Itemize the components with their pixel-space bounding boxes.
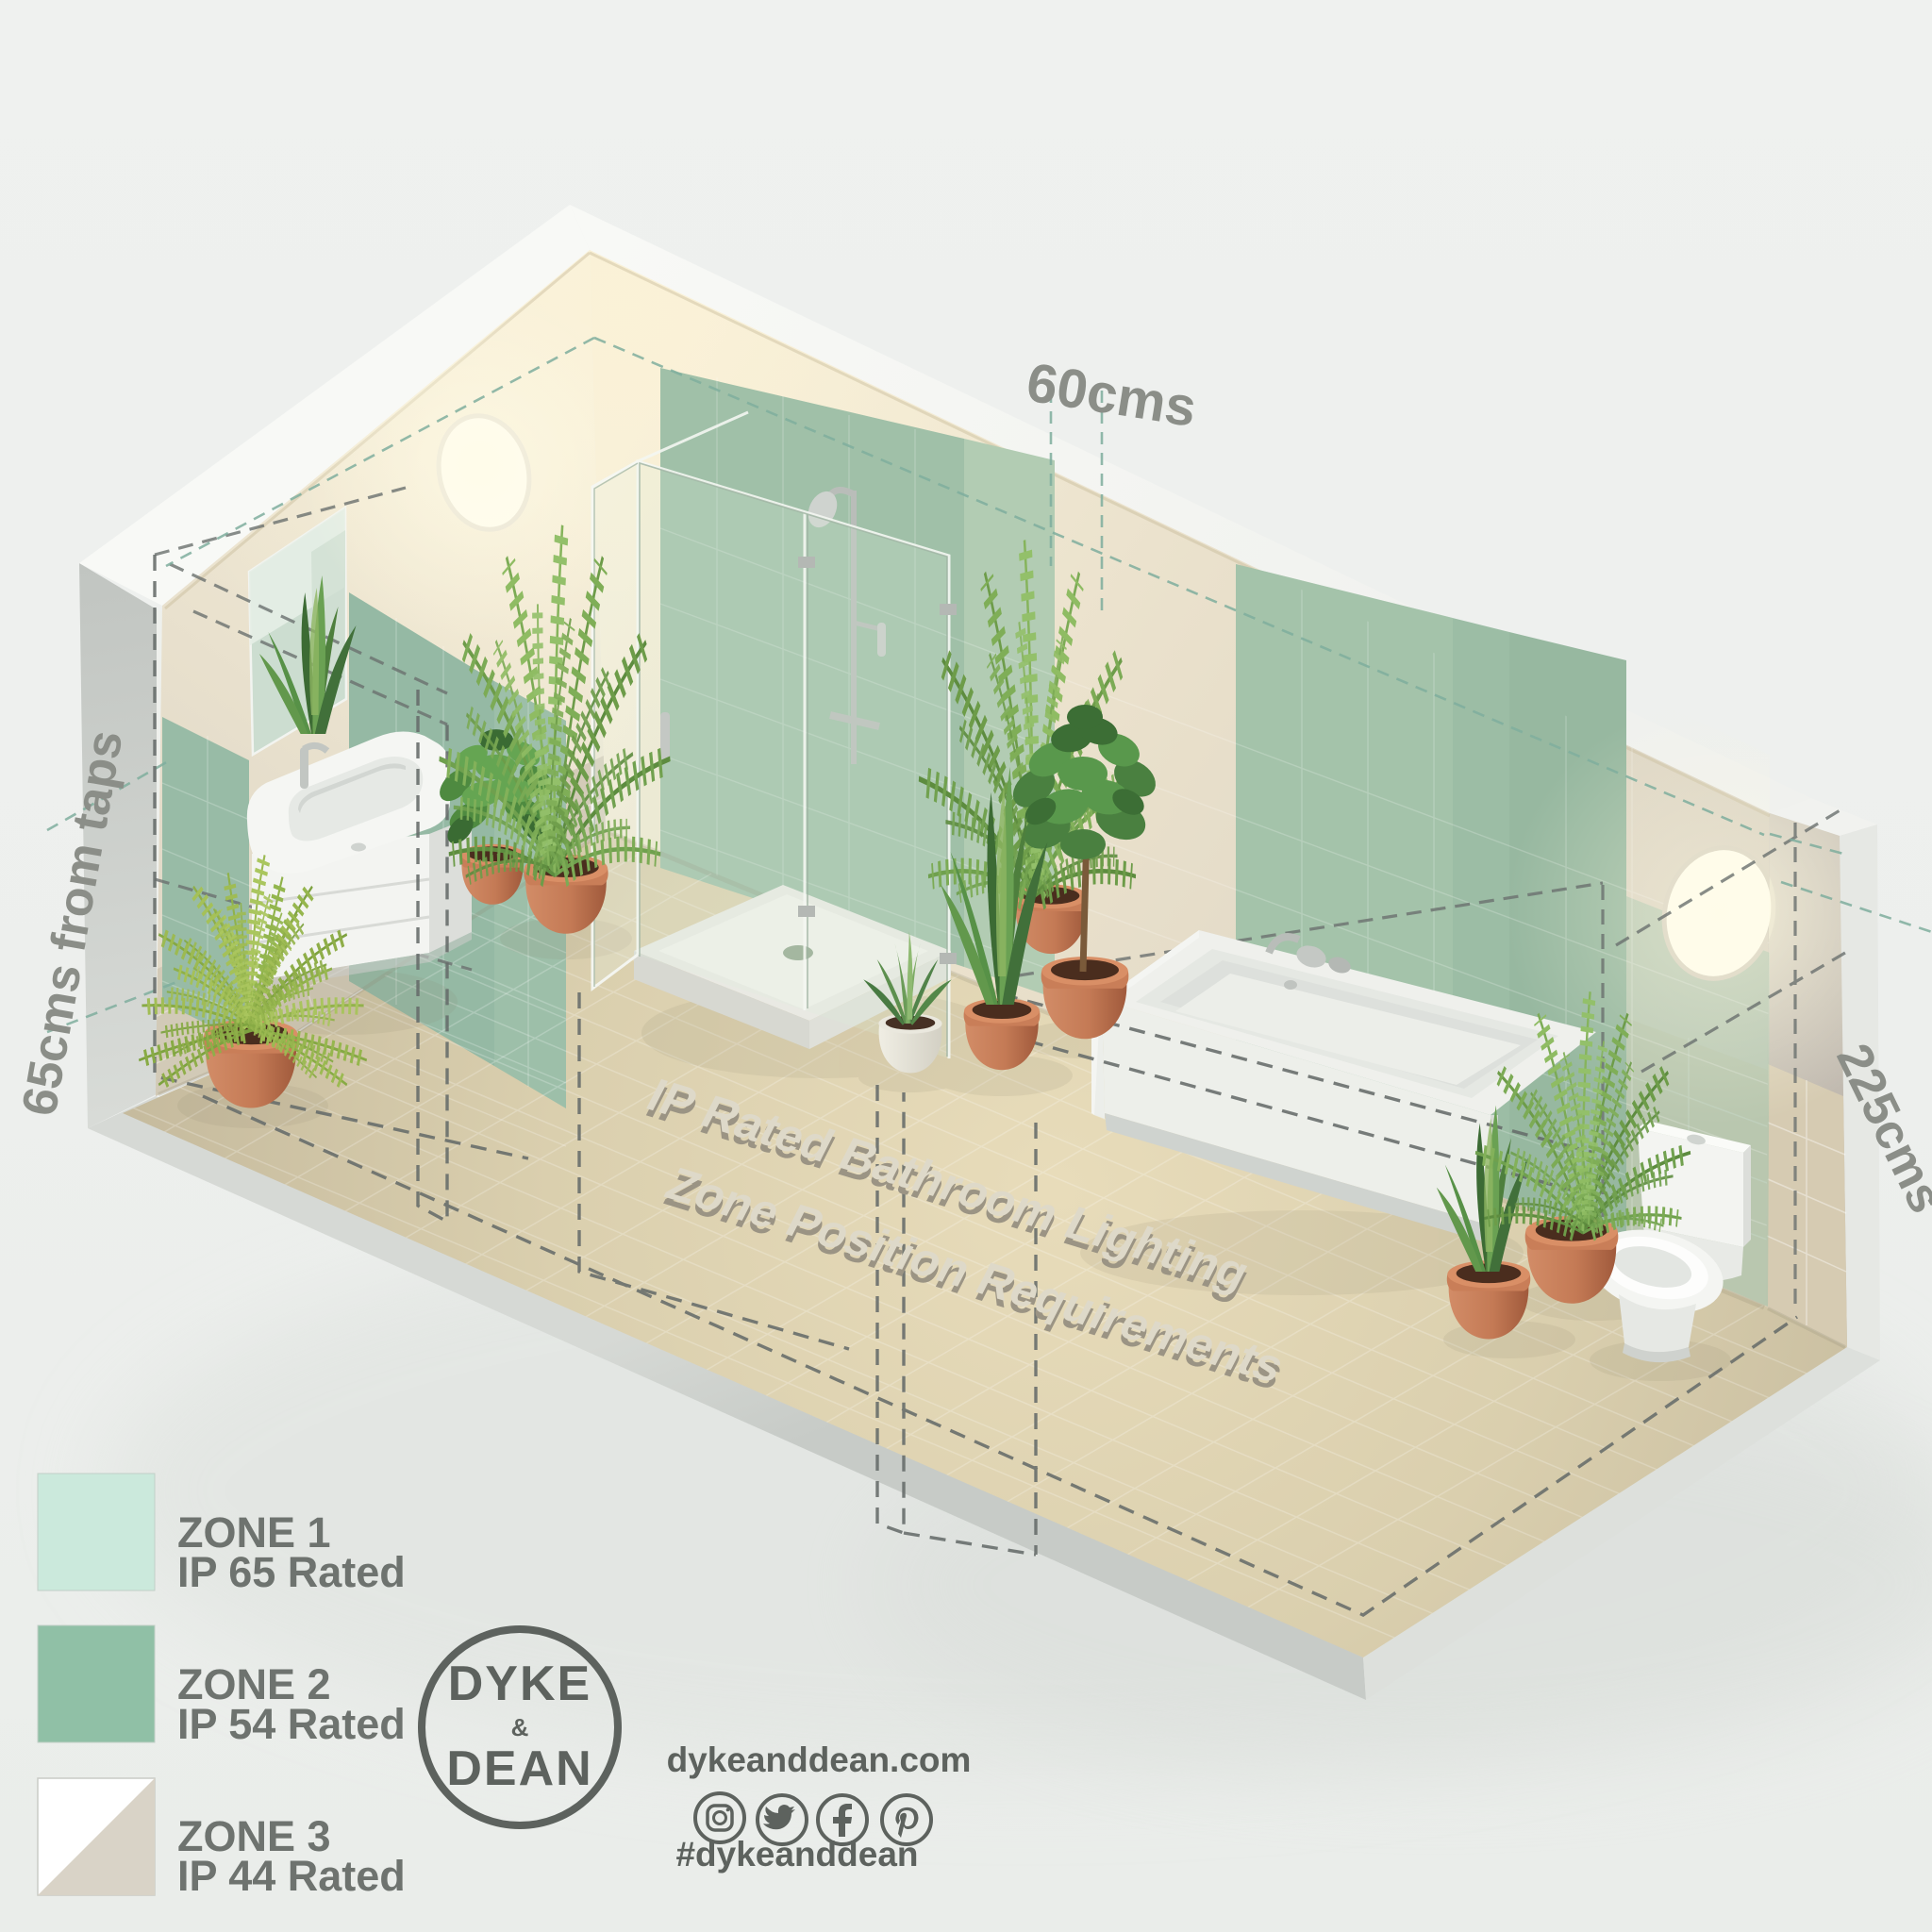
- svg-text:IP 54 Rated: IP 54 Rated: [177, 1700, 406, 1748]
- svg-text:&: &: [511, 1713, 529, 1741]
- svg-text:dykeanddean.com: dykeanddean.com: [667, 1740, 972, 1779]
- svg-text:DYKE: DYKE: [448, 1657, 591, 1711]
- svg-text:IP 44 Rated: IP 44 Rated: [177, 1852, 406, 1900]
- svg-text:IP 65 Rated: IP 65 Rated: [177, 1548, 406, 1596]
- svg-text:DEAN: DEAN: [446, 1741, 592, 1796]
